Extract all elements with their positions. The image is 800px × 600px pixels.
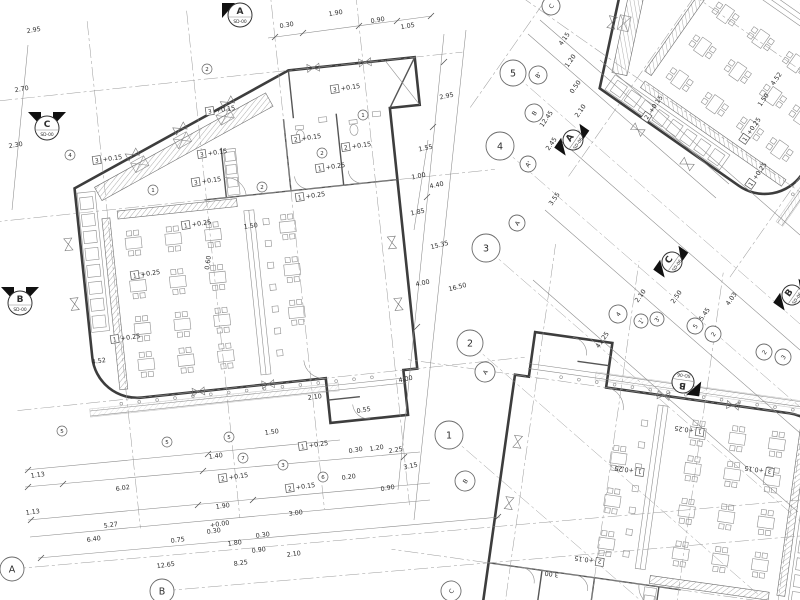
svg-text:+0.15: +0.15 [201,175,222,186]
svg-text:2.70: 2.70 [14,84,29,94]
grid-bubble: C [437,577,465,600]
grid-bubble: 2 [457,330,483,356]
svg-text:2: 2 [320,151,324,157]
svg-text:2.30: 2.30 [8,140,23,150]
svg-text:4: 4 [497,142,503,153]
grid-bubble: 3' [647,309,666,328]
svg-text:7: 7 [241,456,245,462]
section-marker-a: ASD-00 [222,3,252,27]
svg-text:+0.25: +0.25 [674,424,695,435]
unit-tag: 2+0.15 [291,131,321,144]
svg-text:4.40: 4.40 [429,180,445,191]
svg-text:+0.15: +0.15 [207,147,228,158]
svg-text:+0.15: +0.15 [351,140,372,151]
svg-text:4.00: 4.00 [398,374,414,385]
svg-text:1.20: 1.20 [563,53,578,69]
section-marker-b: BSD-00 [1,287,39,315]
svg-text:2.95: 2.95 [26,25,41,35]
svg-text:1.13: 1.13 [25,507,40,517]
grid-bubble: C [538,0,563,19]
svg-text:+0.25: +0.25 [140,268,161,279]
unit-tag: 1+0.25 [130,267,160,280]
svg-text:0.30: 0.30 [279,20,294,30]
svg-text:0.90: 0.90 [251,545,266,555]
svg-text:3.00: 3.00 [544,569,559,579]
unit-tag: 1+0.25 [315,160,345,173]
svg-text:+0.15: +0.15 [301,132,322,143]
grid-bubble: A' [517,153,539,175]
svg-text:0.30: 0.30 [255,530,270,540]
section-marker-b2: BSD-06 [773,275,800,315]
site-plan [0,0,800,600]
svg-text:2.45: 2.45 [544,136,559,152]
main-wing [0,0,539,546]
unit-level-tags: 3+0.15 3+0.15 3+0.15 3+0.15 3+0.15 2+0.1… [92,81,774,566]
svg-text:0.50: 0.50 [568,79,583,95]
svg-text:4: 4 [68,153,72,159]
svg-text:6.40: 6.40 [86,534,101,544]
svg-text:1.05: 1.05 [400,21,415,31]
svg-text:0.30: 0.30 [348,445,363,455]
dimension-labels: 0.30 1.90 0.90 1.05 2.95 2.70 2.30 2.95 … [8,8,784,579]
grid-bubble: B [150,579,174,600]
dimension-lines [12,13,800,600]
svg-text:6: 6 [321,475,325,481]
svg-text:3.55: 3.55 [547,191,562,207]
grid-bubble: 2 [702,323,724,345]
unit-tag: 1+0.25 [295,189,325,202]
svg-text:+0.15: +0.15 [295,481,316,492]
grid-bubble: B' [525,62,550,87]
svg-text:0.90: 0.90 [370,15,385,25]
svg-text:C: C [44,120,51,130]
svg-text:1.00: 1.00 [411,171,427,182]
svg-text:0.60: 0.60 [203,255,213,270]
section-marker-a2: ASD-06 [554,120,591,160]
unit-tag: 1+0.25 [614,464,644,477]
svg-text:1.90: 1.90 [328,8,343,18]
svg-text:2.10: 2.10 [307,392,322,402]
grid-bubble: 3 [472,234,500,262]
svg-text:1.50: 1.50 [756,92,771,108]
svg-text:4.52: 4.52 [769,71,784,87]
svg-text:2.10: 2.10 [573,103,588,119]
svg-text:2.50: 2.50 [669,289,684,305]
svg-text:SD-00: SD-00 [233,19,247,25]
grid-bubble: 1' [631,311,650,330]
svg-text:1.13: 1.13 [30,470,45,480]
svg-text:1: 1 [151,188,155,194]
svg-text:3.00: 3.00 [288,508,303,518]
svg-text:4.00: 4.00 [415,278,431,289]
svg-text:0.30: 0.30 [206,526,221,536]
grid-bubble: 4 [605,301,630,326]
svg-text:0.55: 0.55 [356,405,371,415]
svg-text:5: 5 [227,435,231,441]
svg-text:2.95: 2.95 [439,91,455,102]
svg-text:3: 3 [483,244,489,255]
svg-text:+0.25: +0.25 [614,464,635,475]
svg-text:SD-00: SD-00 [13,307,27,313]
svg-text:41.25: 41.25 [594,330,611,350]
unit-tag: 3+0.15 [191,174,221,187]
svg-text:5: 5 [510,69,516,80]
svg-text:4.03: 4.03 [724,291,739,307]
svg-text:8.25: 8.25 [233,558,248,568]
svg-text:5: 5 [60,429,64,435]
svg-text:1.50: 1.50 [264,427,279,437]
grid-bubble: 1 [435,421,463,449]
svg-text:1.80: 1.80 [227,538,242,548]
svg-text:+0.15: +0.15 [744,464,765,475]
svg-text:5.27: 5.27 [103,520,118,530]
grid-bubble: A [0,557,24,581]
unit-tag: 3+0.15 [744,464,774,477]
unit-tag: 2+0.15 [341,139,371,152]
floor-plan-canvas: 0.30 1.90 0.90 1.05 2.95 2.70 2.30 2.95 … [0,0,800,600]
svg-text:4.52: 4.52 [91,356,106,366]
unit-tag: 1+0.25 [298,438,328,451]
svg-text:16.50: 16.50 [448,281,468,293]
grid-bubble: 3 [772,346,794,368]
svg-text:0.20: 0.20 [341,472,356,482]
svg-text:SD-00: SD-00 [40,132,54,138]
svg-text:12.65: 12.65 [156,560,175,570]
svg-text:B: B [159,587,166,598]
svg-text:+0.15: +0.15 [340,82,361,93]
grid-bubble: 4 [486,132,514,160]
grid-bubble: 2 [753,341,775,363]
grid-bubble: 5 [500,60,526,86]
svg-text:1.55: 1.55 [418,143,434,154]
svg-text:2.10: 2.10 [286,549,301,559]
svg-text:2: 2 [260,185,264,191]
svg-text:1: 1 [361,113,365,119]
svg-text:1.40: 1.40 [208,451,223,461]
section-marker-b3: BSD-06 [670,370,702,397]
svg-text:1.85: 1.85 [410,207,426,218]
svg-text:+0.25: +0.25 [308,439,329,450]
svg-text:+0.25: +0.25 [305,190,326,201]
svg-text:15.35: 15.35 [430,239,450,251]
unit-tag: 1+0.25 [181,217,211,230]
floor-plan-sheet: 0.30 1.90 0.90 1.05 2.95 2.70 2.30 2.95 … [0,0,800,600]
svg-text:3.15: 3.15 [403,461,419,472]
svg-text:+0.25: +0.25 [191,218,212,229]
svg-text:1.90: 1.90 [215,501,230,511]
svg-text:B: B [17,295,24,305]
svg-text:2: 2 [467,339,473,350]
svg-text:2.10: 2.10 [633,288,648,304]
unit-tag: 3+0.15 [197,146,227,159]
grid-bubble: B [451,467,479,495]
svg-text:4.15: 4.15 [557,31,572,47]
grid-bubble: A [506,212,528,234]
svg-text:2: 2 [205,67,209,73]
svg-text:0.75: 0.75 [170,535,185,545]
svg-text:+0.15: +0.15 [574,554,595,565]
svg-text:1.20: 1.20 [369,443,384,453]
svg-text:+0.15: +0.15 [102,153,123,164]
svg-text:1: 1 [446,431,452,442]
svg-text:A: A [9,565,16,576]
unit-tag: 2+0.15 [285,480,315,493]
svg-text:5: 5 [165,440,169,446]
svg-text:0.90: 0.90 [380,483,395,493]
section-marker-c2: CSD-06 [653,242,690,282]
section-marker-c: CSD-00 [28,112,66,140]
svg-text:A: A [237,7,244,17]
svg-text:3: 3 [281,463,285,469]
svg-text:6.02: 6.02 [115,483,130,493]
unit-tag: 3+0.15 [330,81,360,94]
unit-tag: 2+0.15 [218,470,248,483]
svg-text:+0.15: +0.15 [228,471,249,482]
